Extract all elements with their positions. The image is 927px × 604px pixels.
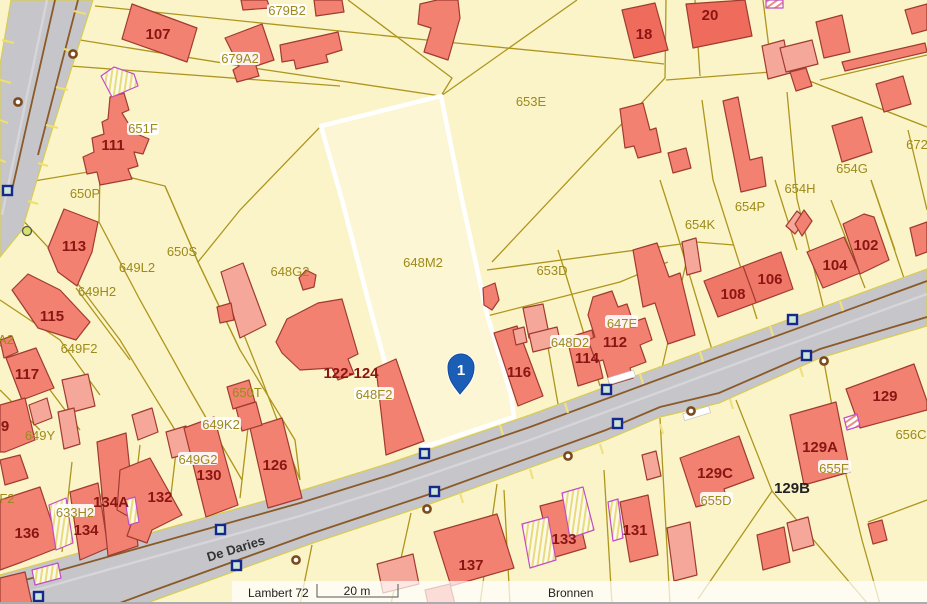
svg-text:112: 112 [603,334,627,351]
svg-text:651F: 651F [128,121,158,136]
svg-text:656C: 656C [895,427,926,442]
svg-text:653E: 653E [516,94,547,109]
svg-text:650P: 650P [70,186,100,201]
svg-text:131: 131 [622,522,647,539]
svg-text:654P: 654P [735,199,765,214]
svg-text:649K2: 649K2 [202,417,240,432]
svg-text:104: 104 [822,257,848,274]
svg-text:129C: 129C [697,465,733,482]
svg-text:650S: 650S [167,244,198,259]
svg-text:122-124: 122-124 [323,365,379,382]
svg-text:654K: 654K [685,217,716,232]
svg-text:134: 134 [73,522,99,539]
svg-text:114: 114 [575,350,600,367]
svg-text:649F2: 649F2 [61,341,98,356]
svg-text:20: 20 [702,7,719,24]
svg-text:649L2: 649L2 [119,260,155,275]
svg-text:649H2: 649H2 [78,284,116,299]
svg-text:129B: 129B [774,480,810,497]
svg-text:672: 672 [906,137,927,152]
svg-text:647E: 647E [607,316,638,331]
svg-text:Bronnen: Bronnen [548,586,593,600]
svg-text:129A: 129A [802,439,838,456]
svg-text:648M2: 648M2 [403,255,443,270]
svg-text:649Y: 649Y [25,428,56,443]
svg-text:F2: F2 [0,491,15,506]
svg-text:115: 115 [40,308,64,325]
svg-text:107: 107 [145,26,170,43]
svg-text:679B2: 679B2 [268,3,306,18]
svg-text:9: 9 [1,418,9,435]
svg-text:654G: 654G [836,161,868,176]
svg-text:108: 108 [720,286,745,303]
svg-text:111: 111 [101,137,124,154]
svg-text:20 m: 20 m [344,584,371,598]
svg-text:133: 133 [551,531,576,548]
svg-text:Lambert 72: Lambert 72 [248,586,309,600]
svg-text:134A: 134A [93,494,129,511]
svg-text:679A2: 679A2 [221,51,259,66]
svg-text:650T: 650T [232,385,262,400]
svg-text:117: 117 [15,366,39,383]
svg-text:113: 113 [62,238,86,255]
svg-text:649G2: 649G2 [178,452,217,467]
svg-text:A2: A2 [0,332,14,347]
svg-text:653D: 653D [536,263,567,278]
svg-text:136: 136 [14,525,39,542]
svg-text:654H: 654H [784,181,815,196]
svg-text:648G2: 648G2 [270,264,309,279]
svg-text:18: 18 [636,26,653,43]
svg-text:648F2: 648F2 [356,387,393,402]
svg-text:648D2: 648D2 [551,335,589,350]
svg-text:126: 126 [262,457,287,474]
svg-text:106: 106 [757,271,782,288]
svg-text:655D: 655D [700,493,731,508]
svg-text:633H2: 633H2 [56,505,94,520]
svg-text:102: 102 [853,237,878,254]
svg-text:116: 116 [507,364,531,381]
svg-text:655F: 655F [819,461,849,476]
svg-text:1: 1 [457,362,465,379]
svg-text:130: 130 [196,467,221,484]
svg-text:129: 129 [872,388,897,405]
svg-text:137: 137 [458,557,483,574]
svg-text:132: 132 [147,489,172,506]
